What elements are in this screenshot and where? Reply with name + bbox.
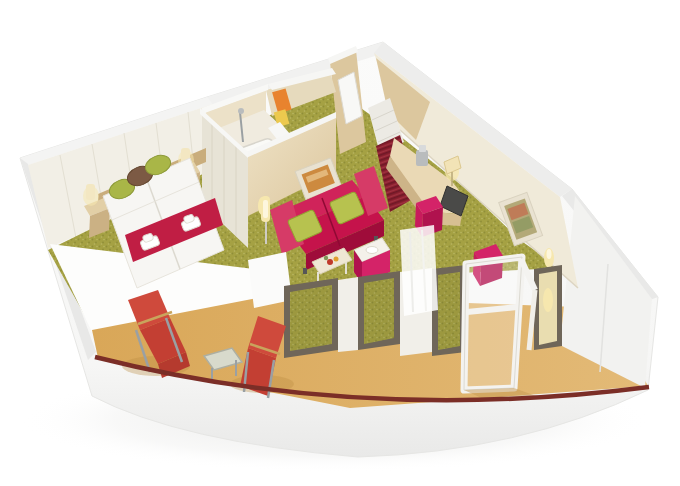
right-wall-lamp-glow: [547, 249, 552, 259]
suite-render: [0, 0, 680, 486]
window-1: [284, 278, 338, 358]
window-2: [358, 271, 400, 350]
window-mullion-1: [338, 277, 358, 352]
sheer-curtain: [400, 225, 438, 316]
window-3: [432, 265, 466, 356]
suite-render-canvas: [0, 0, 680, 486]
shower-head: [238, 108, 244, 114]
window-4: [534, 265, 562, 350]
